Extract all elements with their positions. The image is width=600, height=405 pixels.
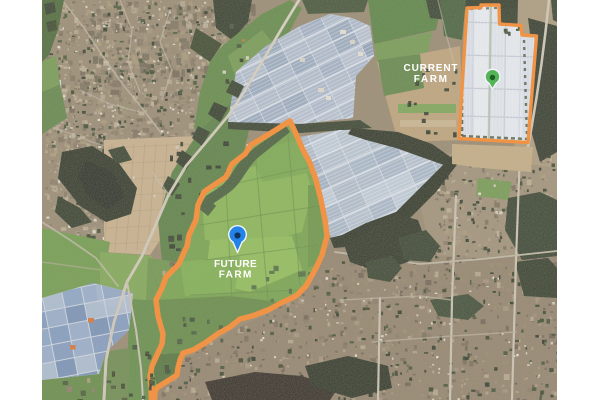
svg-text:FARM: FARM <box>219 270 252 281</box>
svg-text:CURRENT: CURRENT <box>404 63 458 74</box>
svg-text:FUTURE: FUTURE <box>214 259 257 270</box>
svg-text:FARM: FARM <box>414 74 447 85</box>
